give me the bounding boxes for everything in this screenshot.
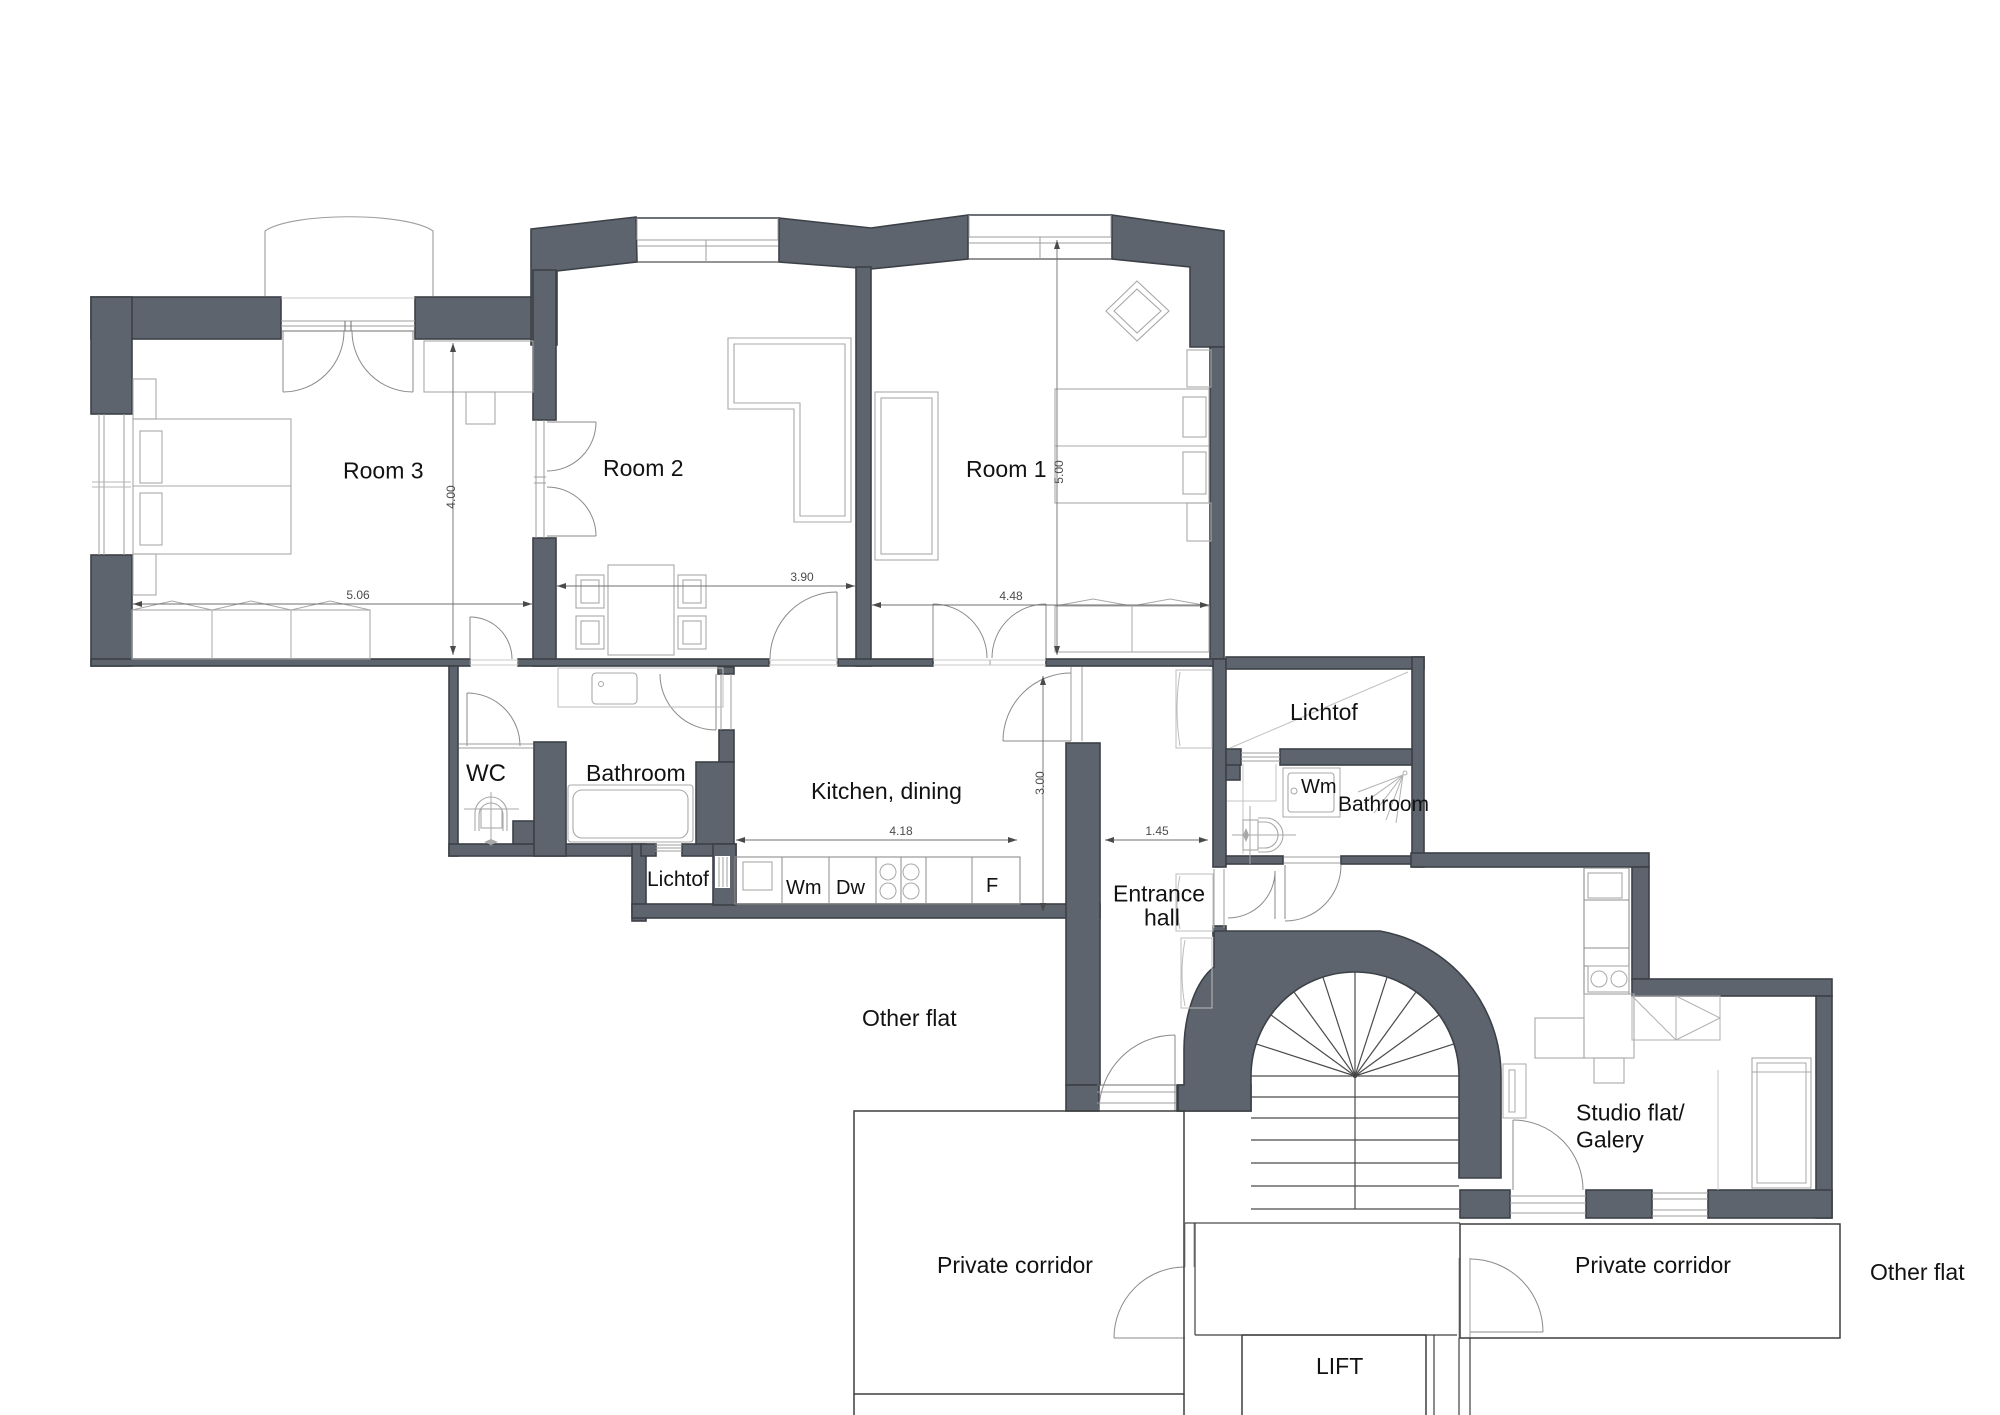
svg-text:Bathroom: Bathroom: [1338, 793, 1429, 816]
svg-text:Wm: Wm: [1301, 776, 1337, 798]
svg-text:5.00: 5.00: [1052, 460, 1066, 484]
svg-text:hall: hall: [1144, 905, 1180, 931]
svg-text:Room 3: Room 3: [343, 458, 424, 484]
svg-text:WC: WC: [466, 760, 506, 787]
svg-text:Lichtof: Lichtof: [1290, 699, 1358, 725]
svg-text:Wm: Wm: [786, 877, 822, 899]
svg-text:5.06: 5.06: [346, 588, 370, 602]
svg-text:3.90: 3.90: [790, 570, 814, 584]
svg-text:4.48: 4.48: [999, 589, 1023, 603]
svg-text:4.00: 4.00: [444, 485, 458, 509]
svg-text:Room 2: Room 2: [603, 455, 684, 481]
svg-text:Dw: Dw: [836, 877, 865, 899]
svg-text:Entrance: Entrance: [1113, 881, 1205, 907]
svg-text:Other flat: Other flat: [862, 1005, 957, 1031]
svg-text:LIFT: LIFT: [1316, 1353, 1363, 1379]
svg-text:Galery: Galery: [1576, 1127, 1644, 1153]
svg-text:Other flat: Other flat: [1870, 1259, 1965, 1285]
svg-text:Private corridor: Private corridor: [1575, 1252, 1731, 1278]
svg-text:1.45: 1.45: [1145, 824, 1169, 838]
svg-text:4.18: 4.18: [889, 824, 913, 838]
svg-text:Kitchen, dining: Kitchen, dining: [811, 778, 962, 804]
svg-text:Room 1: Room 1: [966, 456, 1047, 482]
svg-text:Bathroom: Bathroom: [586, 760, 686, 786]
svg-text:Private corridor: Private corridor: [937, 1252, 1093, 1278]
svg-text:3.00: 3.00: [1033, 771, 1047, 795]
svg-text:Lichtof: Lichtof: [647, 868, 709, 891]
svg-text:F: F: [986, 875, 998, 897]
svg-text:Studio flat/: Studio flat/: [1576, 1100, 1685, 1126]
